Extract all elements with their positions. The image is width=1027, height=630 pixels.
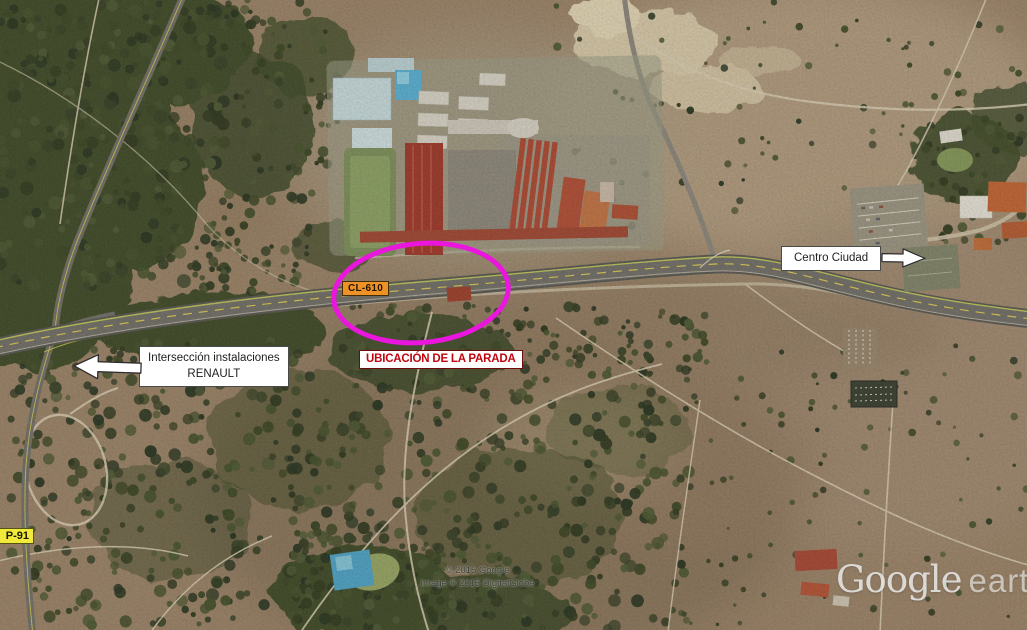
arrow-left-icon (71, 351, 142, 383)
credit-google: © 2015 Google (395, 564, 560, 577)
renault-callout: Intersección instalaciones RENAULT (139, 346, 289, 387)
map-credits: © 2015 Google Image © 2015 DigitalGlobe (395, 564, 560, 590)
satellite-map (0, 0, 1027, 630)
centro-ciudad-callout: Centro Ciudad (781, 246, 881, 271)
renault-callout-line1: Intersección instalaciones (148, 350, 280, 366)
google-earth-logo: Googleearth (836, 558, 1027, 601)
parada-label: UBICACIÓN DE LA PARADA (359, 350, 523, 369)
road-label-cl610: CL-610 (342, 281, 389, 296)
arrow-right-icon (881, 247, 927, 270)
credit-digitalglobe: Image © 2015 DigitalGlobe (395, 577, 560, 590)
road-label-p91: P-91 (0, 528, 34, 544)
renault-callout-line2: RENAULT (148, 366, 280, 382)
earth-logo-text: earth (969, 562, 1027, 599)
google-logo-text: Google (836, 558, 962, 601)
earth-map-view[interactable]: CL-610 P-91 UBICACIÓN DE LA PARADA Inter… (0, 0, 1027, 630)
